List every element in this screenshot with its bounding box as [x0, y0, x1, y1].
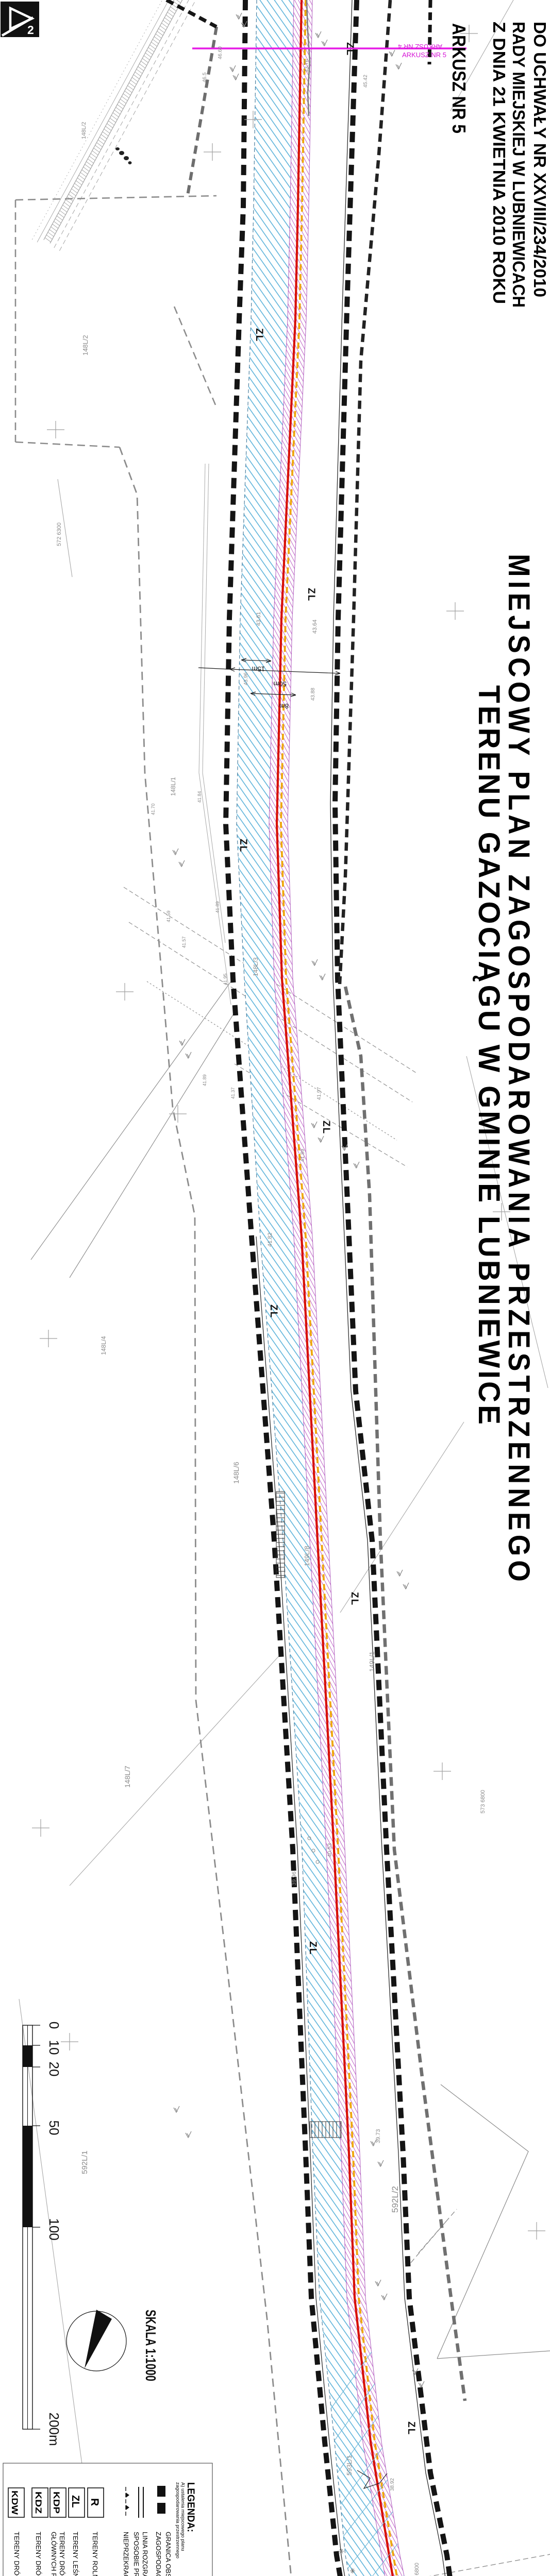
- svg-text:148L/4: 148L/4: [100, 1336, 107, 1355]
- svg-text:8m: 8m: [279, 702, 289, 710]
- svg-text:50: 50: [46, 2121, 62, 2136]
- svg-text:148L/7: 148L/7: [123, 1766, 131, 1788]
- svg-text:SKALA 1:1000: SKALA 1:1000: [143, 2310, 159, 2381]
- svg-text:149L/8: 149L/8: [303, 1546, 311, 1566]
- svg-text:572 6300: 572 6300: [56, 522, 62, 546]
- svg-text:592L/1: 592L/1: [80, 2150, 89, 2174]
- svg-text:573 6800: 573 6800: [480, 1790, 486, 1814]
- svg-text:148L/2: 148L/2: [81, 122, 87, 139]
- svg-text:45.42: 45.42: [363, 75, 369, 88]
- svg-text:39.96: 39.96: [291, 1871, 297, 1886]
- svg-text:ZL: ZL: [268, 1304, 279, 1318]
- svg-text:ZL: ZL: [349, 1592, 360, 1606]
- svg-text:41.82: 41.82: [267, 1232, 273, 1247]
- svg-text:TERENY LEŚNE: TERENY LEŚNE: [72, 2532, 79, 2576]
- svg-text:ZL: ZL: [254, 328, 264, 342]
- svg-text:GŁÓWNYCH RUCHU PRZYSPIESZONEGO: GŁÓWNYCH RUCHU PRZYSPIESZONEGO: [50, 2532, 58, 2576]
- svg-text:593L/1: 593L/1: [345, 2455, 353, 2476]
- svg-text:ZL: ZL: [70, 2495, 81, 2507]
- svg-text:41.84: 41.84: [197, 791, 202, 803]
- svg-text:R: R: [89, 2498, 101, 2506]
- svg-text:10: 10: [46, 2040, 62, 2055]
- svg-text:573 6800: 573 6800: [414, 2563, 420, 2576]
- svg-text:148L/3: 148L/3: [252, 957, 259, 976]
- svg-text:592L/2: 592L/2: [390, 2186, 400, 2213]
- svg-text:ZL: ZL: [238, 839, 248, 853]
- svg-text:DO UCHWAŁY NR XXVIII/234/2010: DO UCHWAŁY NR XXVIII/234/2010: [530, 22, 549, 297]
- svg-text:40.53: 40.53: [327, 1843, 333, 1857]
- svg-text:LEGENDA:: LEGENDA:: [185, 2482, 196, 2532]
- svg-text:148L/2: 148L/2: [81, 335, 89, 355]
- svg-text:41.57: 41.57: [181, 936, 187, 948]
- svg-text:41.89: 41.89: [215, 901, 220, 913]
- svg-text:ARKUSZ NR 5: ARKUSZ NR 5: [448, 23, 470, 133]
- svg-text:100: 100: [46, 2218, 62, 2240]
- svg-text:41.70: 41.70: [151, 803, 156, 815]
- svg-text:149L/1: 149L/1: [368, 1651, 376, 1672]
- svg-text:39.73: 39.73: [375, 2129, 381, 2143]
- svg-text:43.64: 43.64: [312, 619, 318, 634]
- svg-text:2: 2: [27, 23, 34, 37]
- svg-text:43.61: 43.61: [256, 612, 262, 626]
- svg-text:KDP: KDP: [52, 2492, 61, 2514]
- svg-text:KDW: KDW: [10, 2490, 20, 2515]
- svg-text:ZL: ZL: [307, 1941, 318, 1955]
- svg-text:TERENY ROLNICZE: TERENY ROLNICZE: [91, 2532, 99, 2576]
- svg-text:43.88: 43.88: [310, 688, 316, 701]
- svg-text:TERENU GAZOCIĄGU W GMINIE LUBN: TERENU GAZOCIĄGU W GMINIE LUBNIEWICE: [472, 685, 506, 1427]
- svg-text:GRANICA OBSZARU OBJĘTEGO MIEJS: GRANICA OBSZARU OBJĘTEGO MIEJSCOWYM PLAN…: [164, 2532, 172, 2576]
- svg-text:SPOSOBIE PRZEZNACZENIA: SPOSOBIE PRZEZNACZENIA: [132, 2532, 140, 2576]
- svg-text:46.60: 46.60: [218, 46, 223, 59]
- svg-text:TERENY DRÓG PUBLICZNYCH - ZBIO: TERENY DRÓG PUBLICZNYCH - ZBIORCZYCH: [35, 2532, 42, 2576]
- svg-text:41.95: 41.95: [223, 973, 228, 985]
- svg-text:43.76: 43.76: [304, 59, 310, 72]
- svg-text:MIEJSCOWY PLAN ZAGOSPODAROWANI: MIEJSCOWY PLAN ZAGOSPODAROWANIA PRZESTRZ…: [502, 554, 536, 1586]
- svg-text:ZL: ZL: [406, 2421, 416, 2435]
- svg-text:ZAGOSPODAORWANIA PRZESTRZENNEG: ZAGOSPODAORWANIA PRZESTRZENNEGO: [155, 2532, 162, 2576]
- svg-text:NIEPRZEKRACZALNA LINIA ZABUDOW: NIEPRZEKRACZALNA LINIA ZABUDOWY: [122, 2532, 130, 2576]
- svg-text:KDZ: KDZ: [34, 2492, 43, 2514]
- svg-text:41.89: 41.89: [202, 1074, 207, 1086]
- svg-text:148L/6: 148L/6: [232, 1462, 240, 1484]
- svg-text:ARKUSZ NR 4: ARKUSZ NR 4: [398, 43, 442, 50]
- svg-text:20: 20: [46, 2062, 62, 2077]
- svg-text:0: 0: [46, 2022, 62, 2029]
- svg-text:zagospodarowania przestrzenneg: zagospodarowania przestrzennego: [175, 2482, 180, 2558]
- svg-text:38.92: 38.92: [390, 2478, 395, 2491]
- svg-text:41.97: 41.97: [316, 1087, 322, 1100]
- svg-text:Z DNIA 21 KWIETNIA 2010 ROKU: Z DNIA 21 KWIETNIA 2010 ROKU: [490, 22, 509, 304]
- svg-text:46.5: 46.5: [202, 72, 208, 82]
- svg-text:ZL: ZL: [344, 42, 355, 56]
- svg-text:41.59: 41.59: [166, 910, 171, 922]
- svg-text:15m: 15m: [252, 665, 265, 673]
- svg-text:41.89: 41.89: [300, 1149, 306, 1162]
- svg-text:TERENY DRÓG WEWNĘTRZNYCH: TERENY DRÓG WEWNĘTRZNYCH: [13, 2532, 21, 2576]
- svg-text:LINIA ROZGRANICZAJĄCA TERENY O: LINIA ROZGRANICZAJĄCA TERENY O RÓŻNYM: [141, 2532, 149, 2576]
- svg-text:148L/1: 148L/1: [170, 777, 177, 796]
- svg-text:41.37: 41.37: [230, 1087, 236, 1099]
- svg-text:ARKUSZ NR 5: ARKUSZ NR 5: [402, 51, 446, 59]
- svg-text:ZL: ZL: [306, 588, 316, 602]
- svg-text:200m: 200m: [46, 2412, 62, 2446]
- svg-text:RADY MIEJSKIEJ W LUBNIEWICACH: RADY MIEJSKIEJ W LUBNIEWICACH: [509, 22, 528, 308]
- svg-text:ZL: ZL: [321, 1121, 331, 1134]
- svg-text:TERENY DRÓG PUBLICZNYCH -: TERENY DRÓG PUBLICZNYCH -: [58, 2532, 66, 2576]
- svg-text:50m: 50m: [274, 680, 287, 688]
- svg-text:43.96: 43.96: [243, 672, 249, 685]
